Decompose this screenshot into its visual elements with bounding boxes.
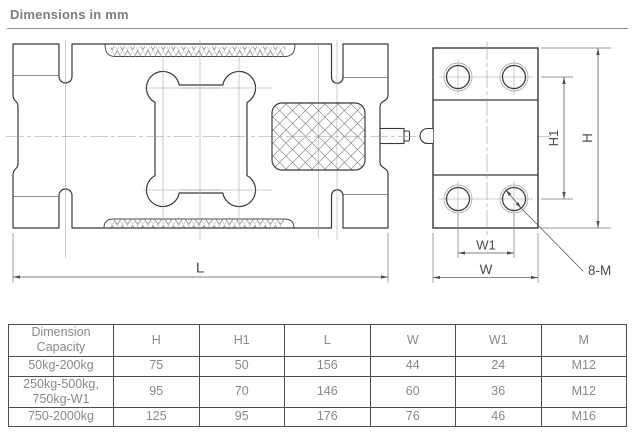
value-cell: 46	[456, 408, 542, 427]
dimension-label-W: W	[480, 262, 493, 277]
cable-gland-tip	[404, 131, 410, 141]
table-header-row: Dimension Capacity H H1 L W W1 M	[9, 325, 627, 357]
dimension-L: L	[13, 233, 388, 283]
value-cell: 24	[456, 356, 542, 376]
dimension-H1: H1	[541, 77, 573, 199]
header-capacity-label: Capacity	[9, 340, 113, 355]
dimension-label-W1: W1	[476, 238, 496, 253]
serrated-strip-bottom-teeth	[110, 219, 284, 228]
column-header-M: M	[541, 325, 627, 357]
value-cell: 75	[114, 356, 200, 376]
dimension-label-H: H	[580, 133, 595, 143]
value-cell: 76	[370, 408, 456, 427]
dimension-label-H1: H1	[546, 130, 561, 147]
value-cell: 50	[199, 356, 285, 376]
column-header-H1: H1	[199, 325, 285, 357]
column-header-W: W	[370, 325, 456, 357]
capacity-cell: 250kg-500kg, 750kg-W1	[9, 376, 114, 408]
value-cell: 95	[199, 408, 285, 427]
strain-gauge-patch	[272, 103, 365, 170]
value-cell: 125	[114, 408, 200, 427]
cable-gland	[380, 129, 404, 144]
value-cell: 36	[456, 376, 542, 408]
table-row: 750-2000kg 125 95 176 76 46 M16	[9, 408, 627, 427]
end-view-body	[433, 48, 538, 228]
value-cell: 146	[285, 376, 371, 408]
value-cell: 60	[370, 376, 456, 408]
datasheet-page: Dimensions in mm	[0, 0, 635, 436]
dimension-label-L: L	[196, 260, 204, 277]
end-view: H H1 W1 W	[420, 42, 611, 283]
value-cell: M12	[541, 356, 627, 376]
column-header-H: H	[114, 325, 200, 357]
table-row: 250kg-500kg, 750kg-W1 95 70 146 60 36 M1…	[9, 376, 627, 408]
value-cell: 176	[285, 408, 371, 427]
value-cell: 70	[199, 376, 285, 408]
header-capacity-cell: Dimension Capacity	[9, 325, 114, 357]
capacity-cell: 50kg-200kg	[9, 356, 114, 376]
cable-stub	[420, 129, 433, 144]
value-cell: M16	[541, 408, 627, 427]
value-cell: M12	[541, 376, 627, 408]
value-cell: 95	[114, 376, 200, 408]
table-row: 50kg-200kg 75 50 156 44 24 M12	[9, 356, 627, 376]
value-cell: 156	[285, 356, 371, 376]
bolt-callout-label: 8-M	[588, 263, 611, 278]
column-header-W1: W1	[456, 325, 542, 357]
capacity-cell: 750-2000kg	[9, 408, 114, 427]
dimensions-table: Dimension Capacity H H1 L W W1 M 50kg-20…	[8, 324, 627, 427]
column-header-L: L	[285, 325, 371, 357]
value-cell: 44	[370, 356, 456, 376]
serrated-strip-top-teeth	[111, 47, 285, 57]
header-dimension-label: Dimension	[9, 325, 113, 340]
